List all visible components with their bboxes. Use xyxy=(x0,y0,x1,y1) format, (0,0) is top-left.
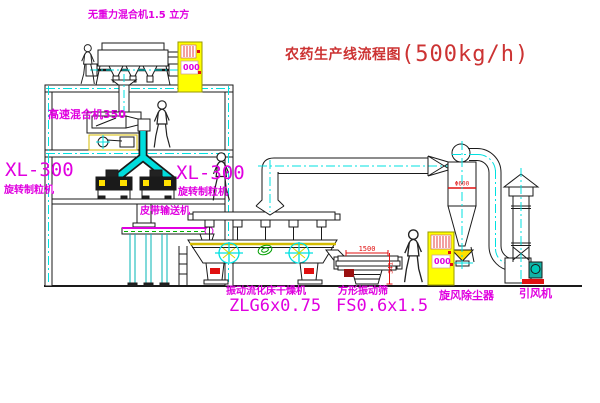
dryer-support-frame xyxy=(179,246,187,285)
cabinet-2-display: 000 xyxy=(434,258,451,266)
label-granulator-left-name: 旋转制粒机 xyxy=(4,186,54,196)
gravity-free-mixer xyxy=(86,43,180,86)
label-granulator-left-model: XL-300 xyxy=(5,161,74,180)
worker-roof xyxy=(81,45,94,84)
fluid-bed-dryer xyxy=(188,212,348,284)
pesticide-line-flow-diagram: 1500 341 Φ600 农药生产线流程图 (500kg/h) 无重力混合机1… xyxy=(0,0,600,403)
title-capacity: (500kg/h) xyxy=(401,42,529,67)
dim-screen-width: 1500 xyxy=(359,245,376,253)
dim-screen-height: 341 xyxy=(387,262,395,274)
worker-ground xyxy=(405,230,423,282)
label-granulator-right-model: XL-300 xyxy=(176,164,245,183)
label-dryer-model: ZLG6x0.75 xyxy=(229,298,321,315)
label-cyclone: 旋风除尘器 xyxy=(439,290,494,301)
diagram-title: 农药生产线流程图 (500kg/h) xyxy=(285,42,529,67)
dim-cyclone-diameter: Φ600 xyxy=(455,181,470,188)
label-gravity-mixer: 无重力混合机1.5 立方 xyxy=(88,11,189,21)
cabinet-1-display: 000 xyxy=(183,64,200,72)
label-fan: 引风机 xyxy=(519,288,552,299)
title-chinese: 农药生产线流程图 xyxy=(285,44,401,67)
worker-floor2 xyxy=(154,101,170,148)
exhaust-duct xyxy=(256,156,450,215)
label-high-speed-mixer: 高速混合机350 xyxy=(48,109,126,120)
label-belt-conveyor: 皮带输送机 xyxy=(140,207,190,217)
label-screen-model: FS0.6x1.5 xyxy=(336,298,428,315)
label-granulator-right-name: 旋转制粒机 xyxy=(178,188,228,198)
